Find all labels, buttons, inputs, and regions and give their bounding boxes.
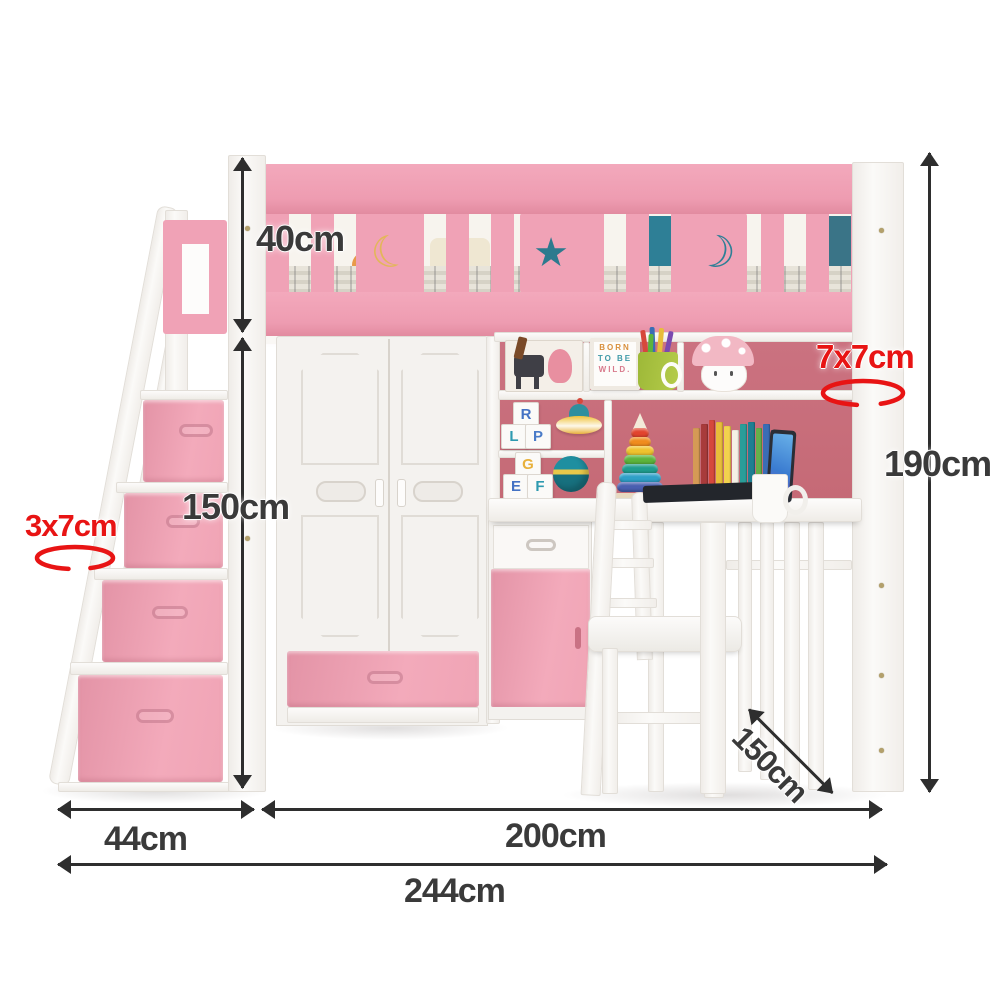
letter-blocks-top: RLP — [500, 402, 552, 448]
loft-bed-dimension-diagram: ☾ ★ ☽ — [0, 0, 1000, 1000]
letter-block: L — [501, 424, 527, 449]
mug-handle — [783, 485, 808, 515]
total-width-label: 244cm — [404, 872, 505, 911]
top-disc — [556, 416, 602, 434]
dim-arrow-bed-length — [262, 808, 882, 811]
star-cutout-icon: ★ — [533, 233, 569, 273]
desk-side-slat — [808, 522, 824, 790]
letter-block: E — [503, 474, 529, 499]
door-handle — [575, 627, 581, 649]
stair-width-label: 44cm — [104, 820, 187, 859]
giraffe-leg — [534, 375, 539, 389]
stair-drawer-1 — [143, 400, 224, 482]
pencil-cup — [638, 352, 678, 390]
bed-post-size-label: 7x7cm — [816, 338, 914, 376]
drawer-handle — [526, 539, 556, 551]
letter-block: P — [525, 424, 551, 449]
born-to-be-wild-sign: BORN TO BE WILD. — [590, 338, 640, 390]
stair-base-board — [58, 782, 230, 792]
cabinet-door-pink — [491, 569, 590, 707]
drawer-handle — [179, 424, 213, 437]
drawer-handle — [152, 606, 188, 619]
wardrobe-panel-tr — [401, 353, 479, 465]
picture-book — [505, 340, 583, 392]
sign-line-2: TO BE — [594, 353, 636, 364]
dim-arrow-under-height — [241, 338, 244, 788]
chair-leg-back — [602, 648, 618, 794]
railing-panel-moon-left: ☾ — [360, 213, 422, 293]
mushroom-eye — [714, 371, 717, 376]
wardrobe-bar-handle-left — [375, 479, 384, 507]
spinning-top-toy — [556, 402, 602, 444]
wardrobe-panel-bl — [301, 515, 379, 637]
drawer-handle — [136, 709, 174, 723]
rail-height-label: 40cm — [256, 218, 344, 260]
rotation-loop-icon — [32, 542, 118, 574]
bed-length-label: 200cm — [505, 817, 606, 856]
sign-line-3: WILD. — [594, 364, 636, 375]
desk-cabinet — [488, 520, 592, 720]
mushroom-cap — [692, 336, 754, 366]
bed-rail-bottom — [250, 292, 868, 336]
chair-back-rung — [603, 598, 657, 608]
stair-drawer-3 — [102, 580, 223, 662]
letter-block: F — [527, 474, 553, 499]
hutch-divider-1 — [583, 342, 590, 392]
toy-ball — [553, 456, 589, 492]
desk-leg-mid — [700, 522, 726, 794]
under-height-label: 150cm — [182, 486, 289, 528]
total-height-label: 190cm — [884, 443, 991, 485]
rotation-loop-icon — [818, 376, 908, 410]
cabinet-drawer — [493, 525, 589, 569]
sign-line-1: BORN — [594, 342, 636, 353]
wardrobe-door-gap — [388, 339, 390, 651]
wardrobe-handle-left — [316, 481, 366, 502]
stacker-cone — [633, 413, 647, 429]
stair-guard-cutout — [182, 244, 209, 314]
railing-panel-moon-right: ☽ — [685, 213, 747, 293]
wardrobe — [276, 336, 488, 726]
drawer-handle — [367, 671, 403, 684]
wardrobe-bar-handle-right — [397, 479, 406, 507]
stair-step-board-1 — [140, 390, 228, 400]
stair-step-board-4 — [70, 662, 228, 675]
rabbit-illustration — [548, 349, 572, 383]
moon-cutout-icon: ☾ — [365, 226, 416, 280]
cup-ring — [661, 362, 682, 388]
stair-guard-panel — [163, 220, 227, 334]
mushroom-eye — [730, 371, 733, 376]
stair-post-size-label: 3x7cm — [25, 508, 117, 544]
dim-arrow-total-width — [58, 863, 887, 866]
ring-stack — [617, 429, 663, 492]
top-tip — [577, 398, 583, 404]
railing-panel-star: ★ — [520, 213, 582, 293]
mushroom-lamp — [692, 336, 754, 390]
bed-rail-top — [262, 164, 856, 214]
giraffe-leg — [516, 375, 521, 389]
dim-arrow-rail-height — [241, 158, 244, 332]
wardrobe-drawer — [287, 651, 479, 707]
stair-drawer-4 — [78, 675, 223, 782]
wardrobe-panel-br — [401, 515, 479, 637]
wardrobe-panel-tl — [301, 353, 379, 465]
wardrobe-handle-right — [413, 481, 463, 502]
wardrobe-base — [287, 707, 479, 723]
mug — [752, 474, 788, 523]
moon-cutout-icon: ☽ — [691, 227, 740, 280]
dim-arrow-stair-width — [58, 808, 254, 811]
letter-blocks-bottom: GEF — [502, 452, 554, 498]
